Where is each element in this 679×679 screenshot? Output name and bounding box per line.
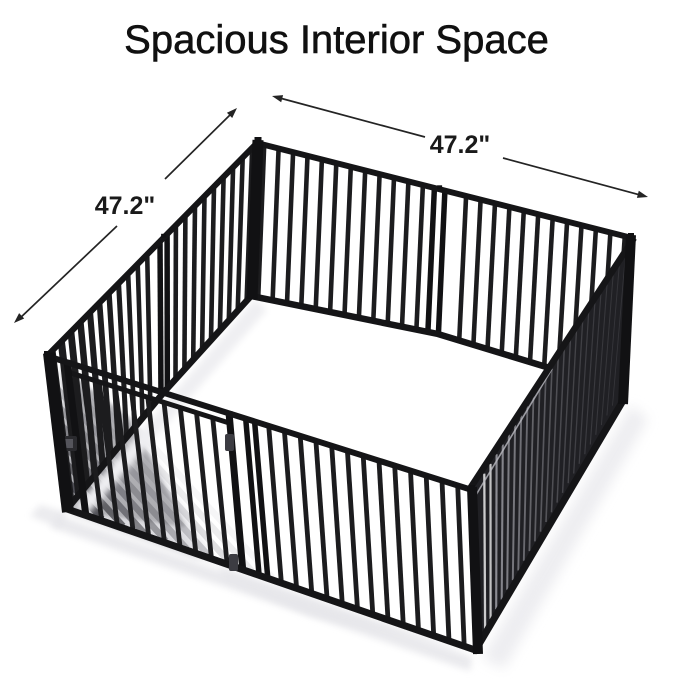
svg-text:47.2": 47.2" (95, 192, 156, 220)
svg-text:47.2": 47.2" (430, 131, 491, 159)
